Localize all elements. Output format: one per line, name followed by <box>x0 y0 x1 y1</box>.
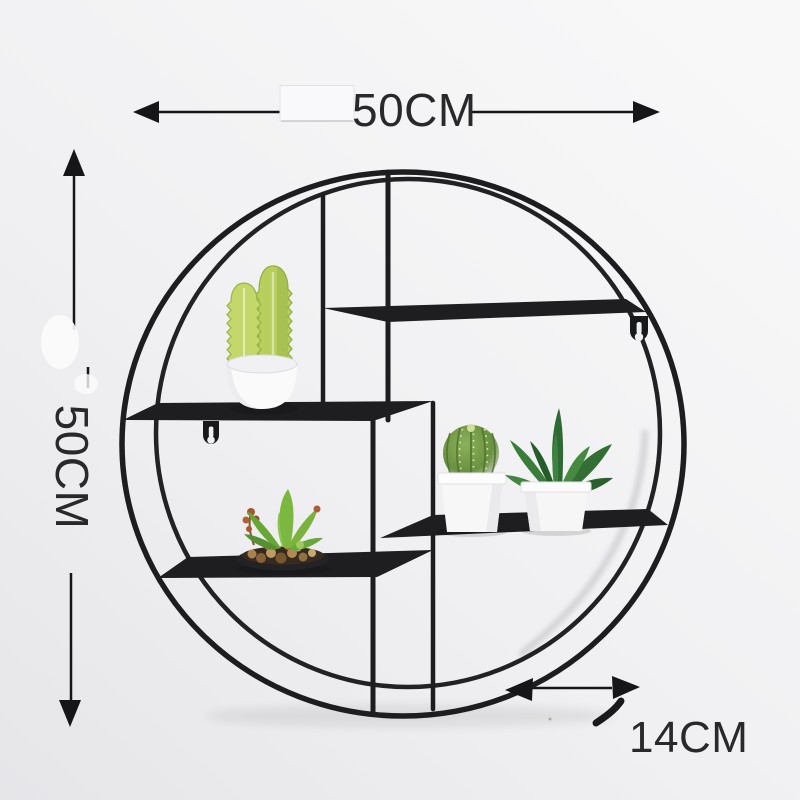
dust-speck <box>549 718 552 721</box>
product-photo: 50CM 50CM 14CM <box>0 0 800 800</box>
columnar-cactus <box>227 266 298 415</box>
erased-watermark-patch <box>280 86 354 122</box>
keyhole-tab-right <box>630 316 648 341</box>
keyhole-tab-left <box>203 421 219 444</box>
depth-label: 14CM <box>629 716 748 760</box>
height-label: 50CM <box>49 405 95 530</box>
width-label: 50CM <box>352 87 477 133</box>
